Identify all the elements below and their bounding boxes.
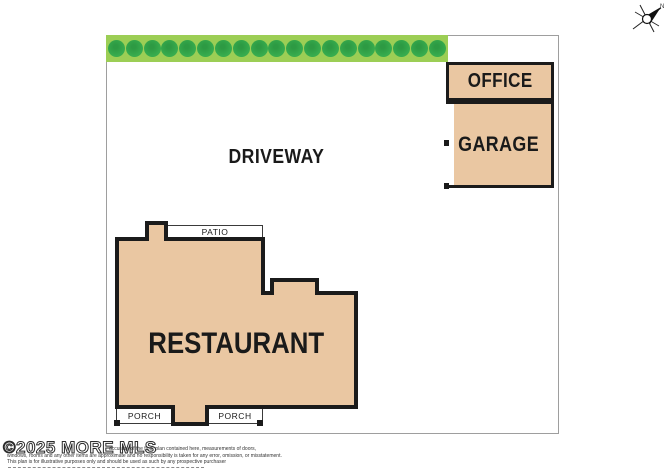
tree-icon [411,40,428,57]
tree-icon [144,40,161,57]
restaurant-label: RESTAURANT [117,327,356,361]
tree-icon [429,40,446,57]
disclaimer-line-1: accuracy of the floor plan contained her… [109,446,256,452]
porch-post-right [257,420,263,426]
fold-line [8,467,204,468]
office-label: OFFICE [468,70,533,93]
tree-icon [340,40,357,57]
tree-icon [179,40,196,57]
restaurant-label-text: RESTAURANT [149,327,325,361]
porch-post-left [114,420,120,426]
tree-icon [268,40,285,57]
office-room: OFFICE [446,62,554,101]
tree-icon [161,40,178,57]
restaurant-footprint [117,223,356,424]
tree-icon [304,40,321,57]
tree-icon [251,40,268,57]
tree-icon [286,40,303,57]
disclaimer-line-3: This plan is for illustrative purposes o… [7,459,226,465]
garage-room: GARAGE [446,101,554,188]
driveway-label: DRIVEWAY [214,146,338,169]
compass-icon: N [629,1,665,35]
tree-icon [393,40,410,57]
driveway-label-text: DRIVEWAY [228,146,324,169]
garage-label: GARAGE [458,133,539,157]
site-plan-canvas: DRIVEWAY OFFICE GARAGE PATIO PORCH PORCH… [0,0,666,471]
tree-icon [358,40,375,57]
tree-icon [375,40,392,57]
restaurant-building [100,205,370,440]
tree-icon [233,40,250,57]
tree-icon [108,40,125,57]
tree-icon [197,40,214,57]
garage-door-tick [444,140,449,146]
tree-icon [126,40,143,57]
tree-icon [322,40,339,57]
tree-icon [215,40,232,57]
garage-door-tick [444,183,449,189]
hedge-row [106,35,448,62]
north-label: N [660,4,664,10]
